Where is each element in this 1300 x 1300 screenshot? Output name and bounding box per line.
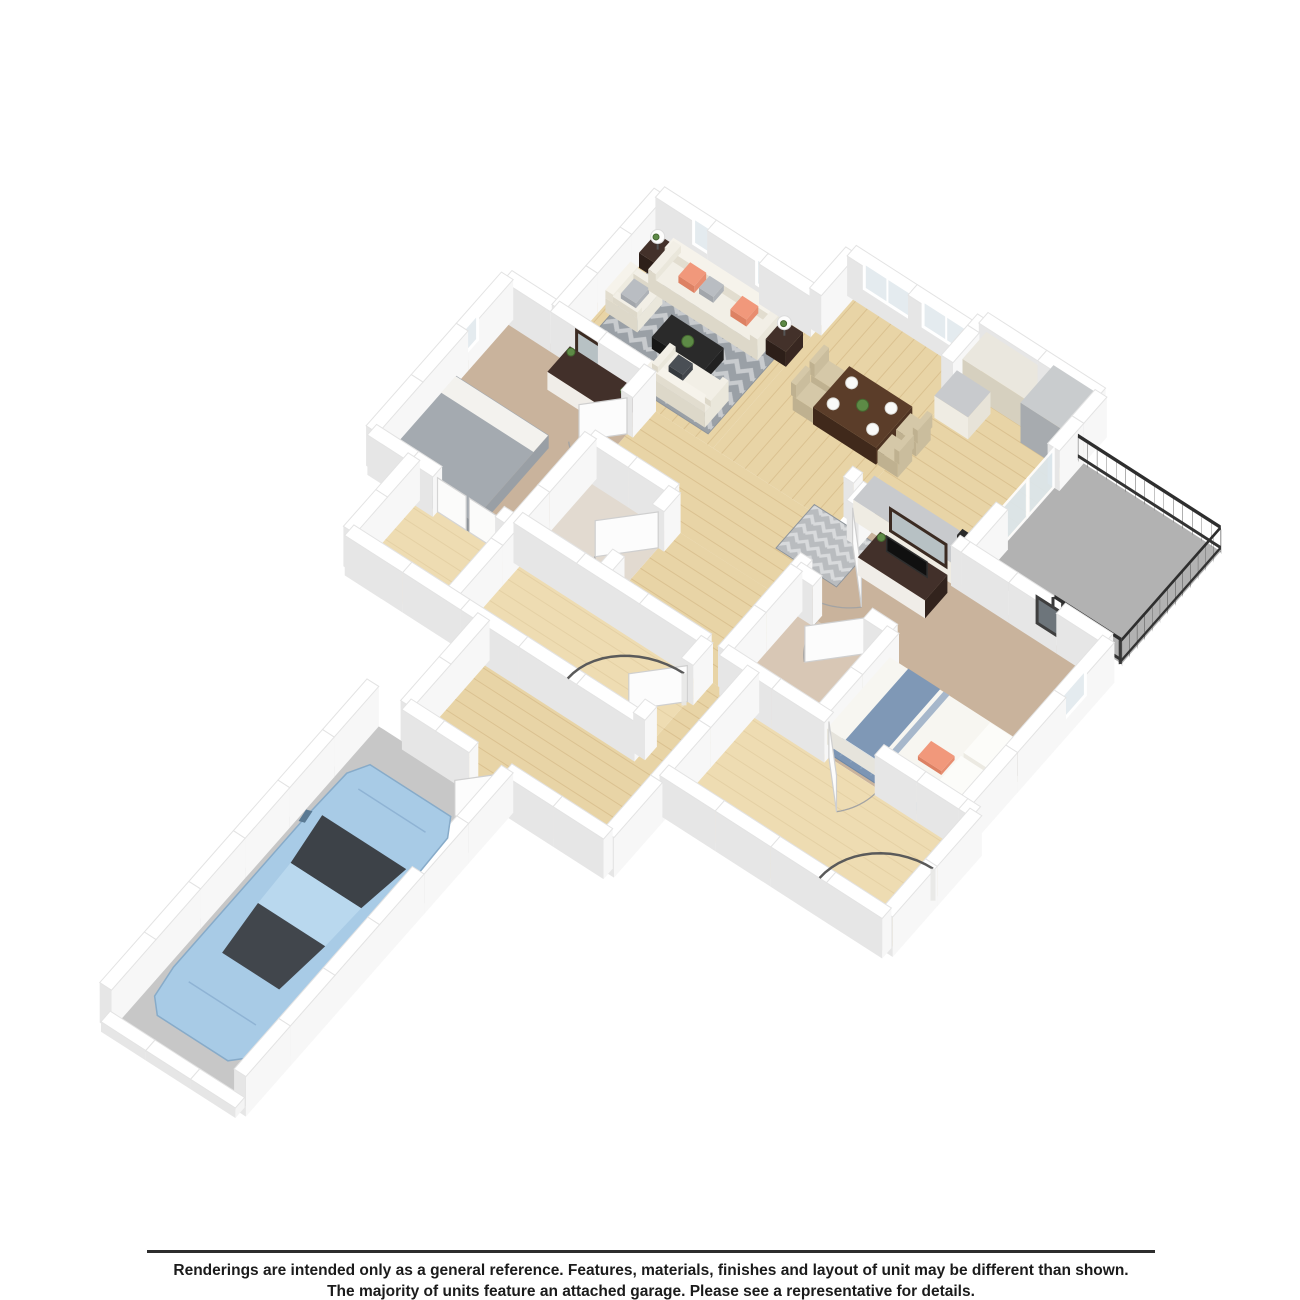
disclaimer-line-1: Renderings are intended only as a genera… bbox=[147, 1260, 1155, 1281]
page: Renderings are intended only as a genera… bbox=[0, 0, 1300, 1300]
disclaimer-line-2: The majority of units feature an attache… bbox=[147, 1281, 1155, 1300]
disclaimer: Renderings are intended only as a genera… bbox=[147, 1250, 1155, 1300]
floor-plan-rendering bbox=[0, 0, 1300, 1300]
floor-plan-svg bbox=[0, 0, 1300, 1300]
hall-bath-door bbox=[629, 666, 688, 710]
